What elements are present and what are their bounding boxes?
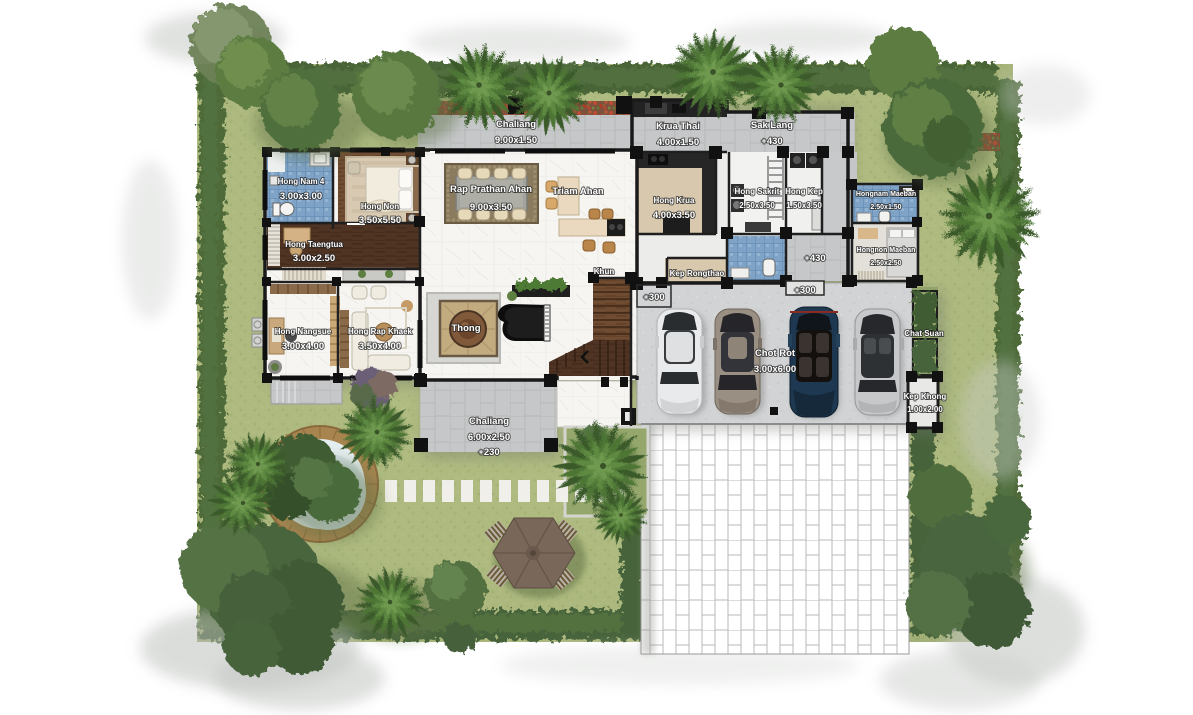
svg-text:Chot Rot: Chot Rot [755, 348, 796, 359]
svg-text:+230: +230 [478, 447, 499, 458]
svg-text:Chaliang: Chaliang [469, 416, 509, 427]
svg-text:3.00x2.50: 3.00x2.50 [293, 253, 335, 264]
svg-text:Krua Thai: Krua Thai [656, 121, 700, 132]
svg-text:Kep Rongthao: Kep Rongthao [670, 269, 725, 278]
svg-text:Khun: Khun [594, 267, 615, 276]
svg-text:Rap Prathan Ahan: Rap Prathan Ahan [450, 184, 532, 195]
svg-text:3.00x3.00: 3.00x3.00 [280, 191, 322, 202]
svg-text:4.00x1.50: 4.00x1.50 [657, 137, 699, 148]
svg-text:Chat Suan: Chat Suan [904, 329, 944, 338]
svg-text:Hong Non: Hong Non [361, 202, 399, 211]
svg-text:3.00x6.00: 3.00x6.00 [754, 364, 796, 375]
svg-text:Kep Khong: Kep Khong [904, 392, 947, 401]
svg-text:2.50x2.50: 2.50x2.50 [870, 260, 901, 267]
svg-text:Hong Sakrit: Hong Sakrit [735, 187, 780, 196]
svg-text:Hongnon Maeban: Hongnon Maeban [857, 247, 916, 254]
svg-text:Hongnam Maeban: Hongnam Maeban [856, 191, 916, 198]
svg-text:Hong Rap Khaek: Hong Rap Khaek [348, 327, 413, 336]
svg-text:Hong Nam 4: Hong Nam 4 [278, 177, 325, 186]
svg-text:Thong: Thong [451, 323, 480, 334]
svg-text:9.00x3.50: 9.00x3.50 [470, 202, 512, 213]
svg-text:+300: +300 [794, 285, 815, 296]
svg-text:9.00x1.50: 9.00x1.50 [495, 135, 537, 146]
svg-text:3.50x4.00: 3.50x4.00 [359, 341, 401, 352]
svg-text:Chaliang: Chaliang [496, 119, 536, 130]
svg-text:+300: +300 [643, 292, 664, 303]
svg-text:6.00x2.50: 6.00x2.50 [468, 432, 510, 443]
svg-text:2.50x3.50: 2.50x3.50 [739, 201, 775, 210]
svg-text:1.00x2.00: 1.00x2.00 [907, 405, 943, 414]
svg-text:Hong Kep: Hong Kep [785, 187, 823, 196]
svg-text:+430: +430 [804, 253, 825, 264]
svg-text:1.50x3.50: 1.50x3.50 [786, 201, 822, 210]
svg-text:3.50x5.50: 3.50x5.50 [359, 215, 401, 226]
svg-text:Hong Krua: Hong Krua [654, 196, 695, 205]
svg-text:+430: +430 [761, 136, 782, 147]
svg-text:Sak Lang: Sak Lang [751, 120, 793, 131]
svg-text:Hong Nangsue: Hong Nangsue [275, 327, 332, 336]
svg-text:4.00x3.50: 4.00x3.50 [653, 210, 695, 221]
svg-text:3.00x4.00: 3.00x4.00 [282, 341, 324, 352]
svg-text:2.50x1.50: 2.50x1.50 [870, 204, 901, 211]
svg-text:Hong Taengtua: Hong Taengtua [285, 240, 343, 249]
svg-text:Triam Ahan: Triam Ahan [552, 186, 604, 197]
